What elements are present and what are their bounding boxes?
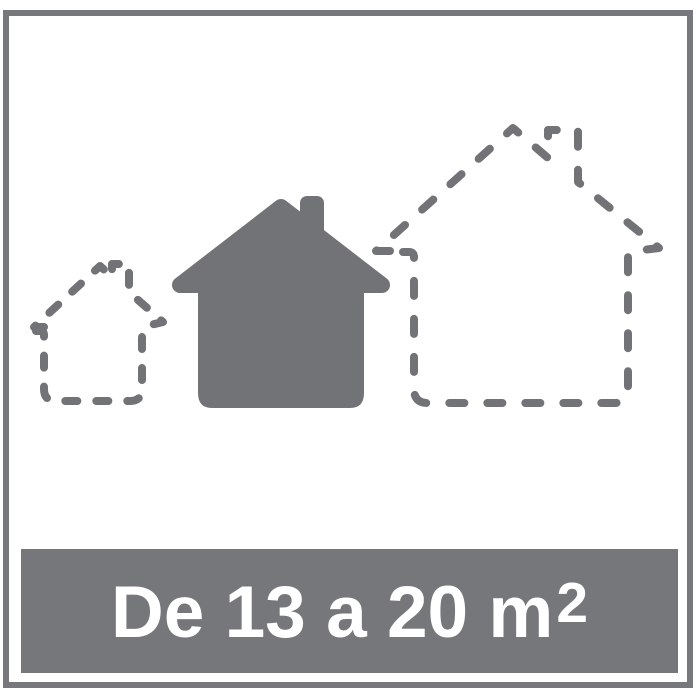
solid-house-roof: [180, 207, 382, 285]
small-house-roof-outline: [34, 264, 163, 327]
size-range-superscript: 2: [556, 571, 588, 635]
size-range-text: De 13 a 20 m: [111, 572, 553, 653]
large-house-roof-outline: [376, 128, 659, 251]
small-dashed-house-icon: [34, 264, 163, 401]
solid-house-body: [198, 288, 364, 408]
large-dashed-house-icon: [376, 128, 659, 403]
large-house-body-outline: [403, 252, 639, 403]
small-house-body-outline: [36, 331, 150, 401]
size-range-label: De 13 a 20 m2: [111, 567, 588, 655]
size-range-banner: De 13 a 20 m2: [21, 549, 678, 673]
solid-house-icon: [180, 196, 382, 408]
